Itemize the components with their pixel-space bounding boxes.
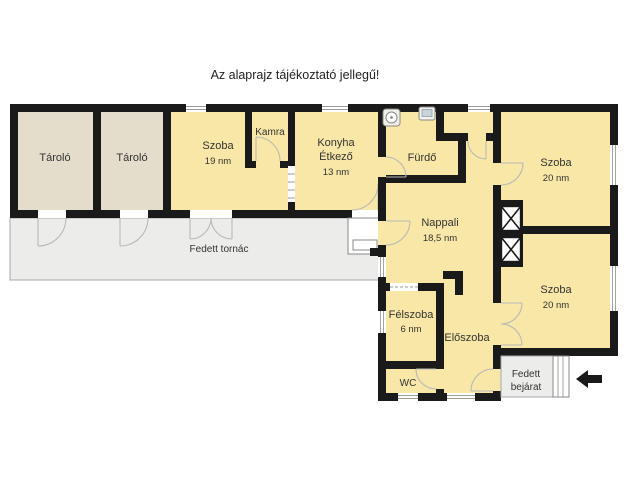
hall-wall [486,133,493,141]
room-nappali-label: Nappali [421,217,458,229]
door-gap [493,163,501,185]
window [468,104,490,112]
room-tarolo-2-label: Tároló [116,152,147,164]
door-gap [352,210,378,218]
door-gap [493,303,501,345]
toilet-icon [419,107,435,120]
door-gap [378,221,386,245]
porch-label: Fedett tornác [190,244,249,255]
sink-icon [383,109,400,126]
door-gap [468,133,486,141]
room-szoba19-area: 19 nm [205,156,231,167]
room-wc-label: WC [400,378,417,389]
room-szoba-lower-label: Szoba [540,284,572,296]
kamra-wall [245,161,256,168]
door-gap [436,369,444,389]
window [610,145,618,185]
room-furdo-label: Fürdő [408,152,437,164]
window [378,311,386,333]
window [322,104,348,112]
floor-plan-page: Az alaprajz tájékoztató jellegű! [0,0,640,480]
room-felszoba-area: 6 nm [400,324,421,335]
dashed-opening [390,283,418,291]
entrance-steps [553,356,569,397]
room-nappali-area: 18,5 nm [423,233,457,244]
door-gap [120,210,148,218]
door-gap [190,210,232,218]
furdo-wall [386,175,466,183]
room-kamra-label: Kamra [255,127,285,138]
window [447,393,475,401]
window [288,166,295,202]
room-szoba-upper-label: Szoba [540,157,572,169]
kamra-wall [245,112,252,168]
room-konyha-label-2: Étkező [319,150,353,163]
room-konyha-area: 13 nm [323,167,349,178]
room-eloszoba-label: Előszoba [444,332,490,344]
window [186,104,206,112]
door-gap [493,369,501,391]
door-gap [38,210,66,218]
nappali-wall-stub [455,271,463,295]
hall-wall [436,133,468,141]
szoba-divider-wall [521,226,610,234]
wc-wall [378,361,436,369]
room-felszoba-label: Félszoba [389,309,435,321]
window [398,393,418,401]
door-gap [378,157,386,177]
plan-disclaimer-title: Az alaprajz tájékoztató jellegű! [211,68,380,82]
chimney-icon [501,237,521,262]
chimney-icon [501,206,521,231]
room-szoba19-label: Szoba [202,140,234,152]
room-szoba-upper-area: 20 nm [543,173,569,184]
room-szoba-lower-area: 20 nm [543,300,569,311]
room-tarolo-1-label: Tároló [39,152,70,164]
window [610,266,618,311]
covered-entrance-label-1: Fedett [512,369,541,380]
entrance-arrow-icon [576,370,602,388]
covered-entrance-label-2: bejárat [511,382,542,393]
floor-plan-canvas: Az alaprajz tájékoztató jellegű! [0,0,640,480]
window [378,257,386,277]
kamra-wall [280,161,288,168]
room-konyha-label-1: Konyha [317,137,355,149]
